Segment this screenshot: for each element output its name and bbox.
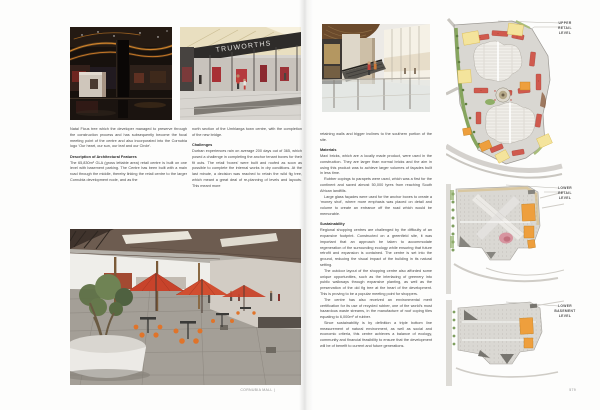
paragraph: Natal Ficus tree which the developer man…	[70, 127, 187, 150]
paragraph: north section of the Umhlanga town centr…	[192, 127, 302, 139]
paragraph: The outdoor layout of the shopping centr…	[320, 269, 432, 298]
plan-label-lower-retail: LOWER RETAIL LEVEL	[552, 186, 578, 202]
escalator-atrium-photo	[322, 24, 430, 112]
street-trees	[453, 311, 456, 346]
site-plan-lower-retail	[446, 182, 564, 298]
left-page: TRUWORTHS	[0, 0, 300, 410]
paragraph: Large glass façades were used for the an…	[320, 195, 432, 218]
paragraph: Maxi bricks, which are a locally made pr…	[320, 154, 432, 177]
left-text-column-2: north section of the Umhlanga town centr…	[192, 127, 302, 190]
mall-interior-night-photo	[70, 27, 172, 120]
central-column	[116, 40, 129, 98]
paragraph: Regional shopping centres are challenged…	[320, 228, 432, 269]
running-footer: CORNUBIA MALL |	[180, 388, 275, 392]
site-plan-upper-retail	[446, 18, 564, 184]
paragraph: Since sustainability is by definition a …	[320, 321, 432, 350]
truworths-storefront-photo: TRUWORTHS	[180, 27, 301, 120]
site-plan-lower-basement	[446, 298, 564, 388]
page-number: 579	[556, 388, 576, 392]
left-text-column-1: Natal Ficus tree which the developer man…	[70, 127, 187, 184]
paragraph: The 65,830m² GLA (gross lettable area) r…	[70, 161, 187, 184]
food-court-photo	[70, 229, 301, 385]
glass-balustrade	[322, 78, 430, 112]
paragraph: Rubber copings to parapets were used, wh…	[320, 177, 432, 194]
paragraph: retaining walls and bigger inclines to t…	[320, 132, 432, 144]
plan-label-lower-basement: LOWER BASEMENT LEVEL	[549, 304, 581, 320]
paragraph: The centre has also received an environm…	[320, 298, 432, 321]
right-page: retaining walls and bigger inclines to t…	[300, 0, 600, 410]
plan-label-upper-retail: UPPER RETAIL LEVEL	[552, 21, 578, 37]
right-text-column: retaining walls and bigger inclines to t…	[320, 132, 432, 350]
paragraph: Durban experiences rain on average 200 d…	[192, 149, 302, 190]
kiosk	[79, 72, 106, 98]
